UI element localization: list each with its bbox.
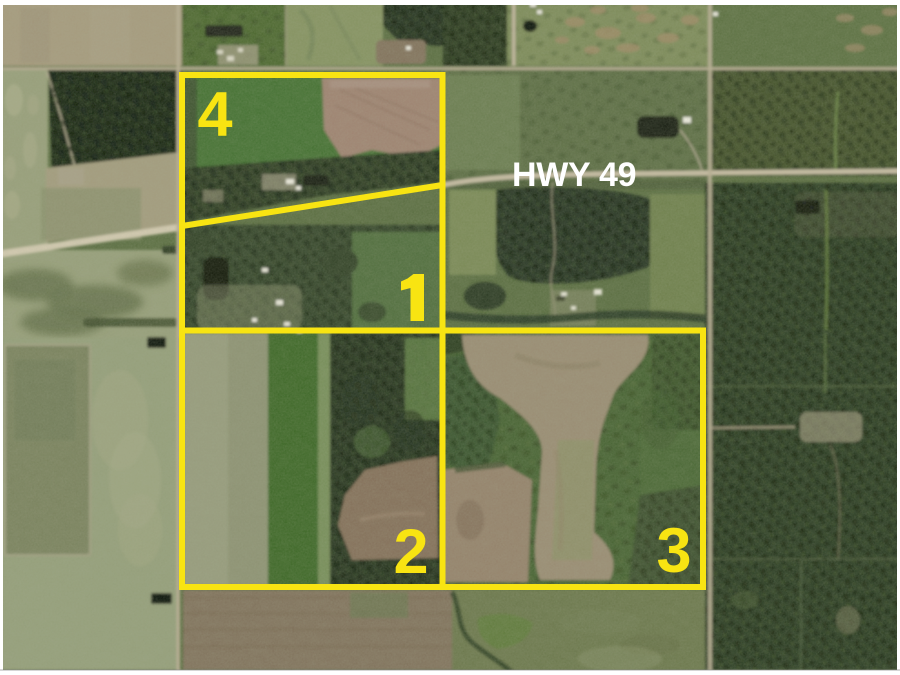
svg-text:HWY 49: HWY 49 (512, 156, 636, 194)
svg-text:2: 2 (393, 517, 428, 587)
svg-text:3: 3 (656, 516, 691, 586)
svg-text:4: 4 (197, 80, 232, 150)
